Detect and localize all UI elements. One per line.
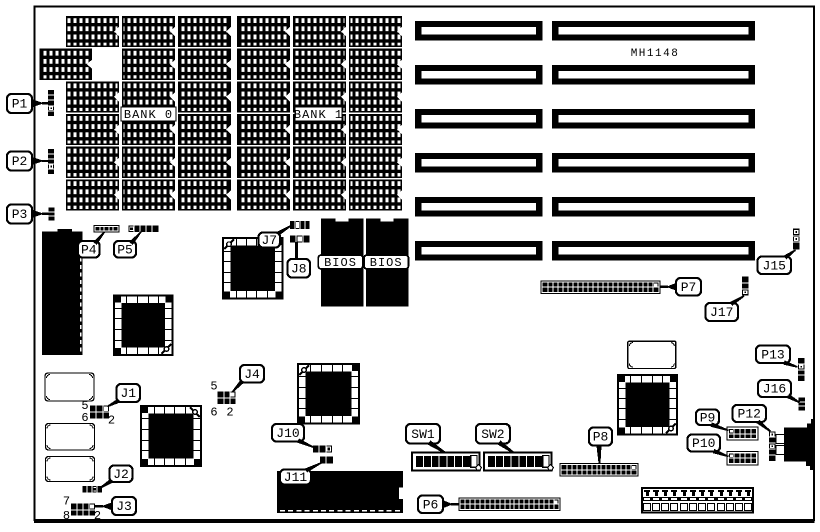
- svg-text:P6: P6: [423, 497, 439, 512]
- svg-text:BANK 1: BANK 1: [294, 108, 343, 122]
- svg-text:P8: P8: [593, 430, 609, 445]
- svg-text:BIOS: BIOS: [324, 256, 357, 270]
- svg-text:J10: J10: [276, 426, 299, 441]
- svg-text:P3: P3: [12, 207, 28, 222]
- svg-text:P2: P2: [12, 154, 28, 169]
- svg-text:MH1148: MH1148: [631, 48, 680, 60]
- svg-text:P1: P1: [12, 97, 28, 112]
- svg-text:P4: P4: [81, 242, 97, 257]
- svg-text:SW1: SW1: [411, 427, 435, 442]
- svg-text:J3: J3: [116, 499, 132, 514]
- svg-text:J16: J16: [763, 382, 786, 397]
- svg-text:5: 5: [210, 380, 217, 394]
- svg-text:J11: J11: [284, 470, 308, 485]
- svg-text:P13: P13: [761, 347, 784, 362]
- svg-text:8: 8: [63, 509, 70, 523]
- svg-text:P5: P5: [117, 242, 133, 257]
- svg-text:J8: J8: [291, 261, 307, 276]
- svg-text:2: 2: [108, 414, 115, 428]
- svg-text:J1: J1: [120, 386, 136, 401]
- svg-text:P10: P10: [692, 436, 715, 451]
- svg-text:2: 2: [226, 406, 233, 420]
- svg-text:P7: P7: [681, 280, 697, 295]
- svg-text:6: 6: [210, 406, 217, 420]
- svg-text:2: 2: [94, 509, 101, 523]
- svg-text:BANK 0: BANK 0: [124, 108, 173, 122]
- svg-text:J4: J4: [244, 367, 260, 382]
- svg-text:J2: J2: [113, 467, 129, 482]
- svg-text:J7: J7: [261, 233, 277, 248]
- svg-text:J15: J15: [763, 258, 786, 273]
- svg-text:7: 7: [63, 495, 70, 509]
- svg-text:P12: P12: [738, 407, 761, 422]
- svg-text:J17: J17: [710, 305, 733, 320]
- svg-text:SW2: SW2: [481, 427, 504, 442]
- svg-text:6: 6: [81, 411, 88, 425]
- svg-text:BIOS: BIOS: [370, 256, 403, 270]
